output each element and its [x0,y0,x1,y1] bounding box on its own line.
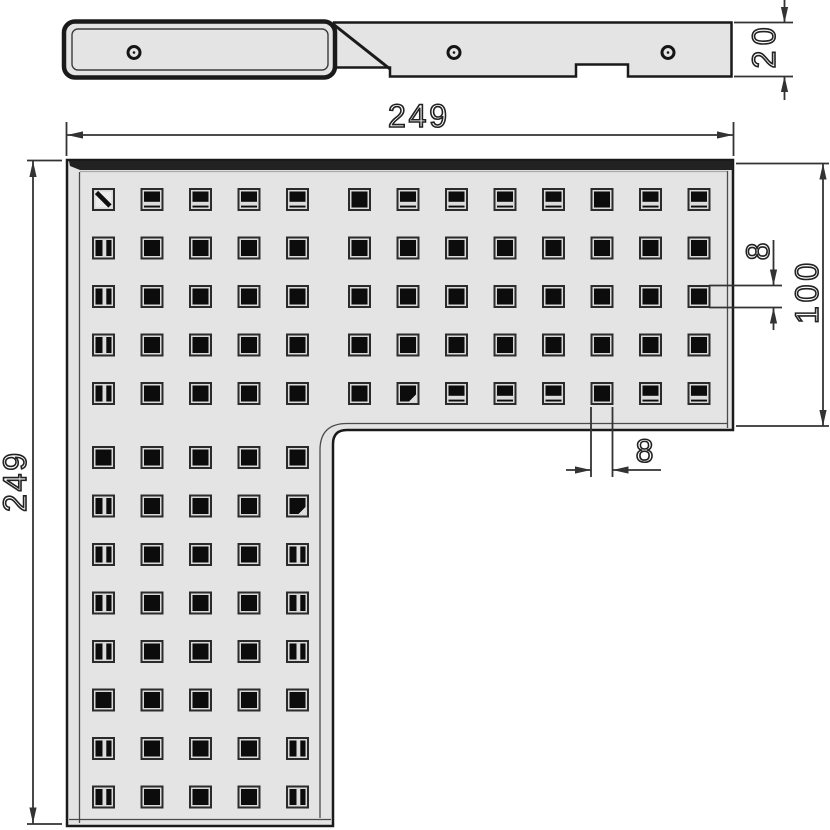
grate-hole [286,689,309,712]
grate-hole [639,382,662,405]
grate-hole [141,640,164,663]
grate-hole [141,786,164,809]
arrowhead [613,466,629,473]
dimension-thickness-20 [734,0,793,100]
dim-label-hole-width: 8 [636,433,653,469]
grate-hole [445,382,468,405]
grate-hole [92,334,115,357]
grate-hole [238,737,261,760]
grate-hole [397,285,420,308]
grate-hole [639,188,662,211]
grate-hole [189,689,212,712]
plate-outline [67,160,733,826]
grate-hole [286,640,309,663]
plan-view [67,160,733,826]
grate-hole [238,640,261,663]
profile-rivet-hole [448,47,460,59]
grate-hole [286,188,309,211]
grate-hole [189,737,212,760]
grate-hole [141,285,164,308]
grate-hole [238,237,261,260]
grate-hole [92,382,115,405]
grate-hole [286,786,309,809]
grate-hole [591,285,614,308]
grate-hole [189,543,212,566]
grate-hole [445,334,468,357]
grate-hole [92,237,115,260]
profile-view [64,22,732,78]
grate-hole [494,334,517,357]
grate-hole [591,334,614,357]
grate-hole [238,188,261,211]
grate-hole [92,188,115,211]
grate-hole [141,543,164,566]
grate-hole [141,334,164,357]
grate-hole [286,285,309,308]
arrowhead [781,76,788,92]
grate-hole [238,543,261,566]
arrowhead [29,161,36,177]
dim-label-thickness: 20 [746,28,782,68]
grate-hole [189,334,212,357]
grate-hole [542,382,565,405]
profile-endcap-outline [64,22,335,78]
arrowhead [770,308,777,324]
grate-hole [591,188,614,211]
grate-hole [542,285,565,308]
grate-hole [189,188,212,211]
grate-hole [688,188,711,211]
grate-hole [286,543,309,566]
grate-hole [141,382,164,405]
grate-hole [189,446,212,469]
grate-hole [141,237,164,260]
dim-label-hole-height: 8 [740,243,776,260]
arrowhead [67,131,83,138]
grate-hole [286,592,309,615]
grate-hole [348,382,371,405]
arrowhead [819,410,826,426]
plate-inner-corner-line [320,424,727,819]
grate-hole [238,495,261,518]
profile-rivet-hole [662,47,674,59]
grate-hole [445,188,468,211]
grate-hole [397,382,420,405]
grate-hole [92,737,115,760]
grate-hole [92,640,115,663]
dim-label-arm-width: 100 [789,264,825,324]
grate-hole [688,382,711,405]
grate-hole [286,737,309,760]
grate-hole [591,382,614,405]
grate-hole [189,640,212,663]
grate-hole [494,237,517,260]
arrowhead [770,270,777,286]
grate-hole [397,334,420,357]
grate-hole [92,689,115,712]
grate-hole [542,188,565,211]
grate-hole [189,786,212,809]
grate-hole [494,188,517,211]
grate-hole [189,285,212,308]
grate-hole [189,237,212,260]
grate-hole [238,592,261,615]
grate-hole [238,689,261,712]
grate-hole [639,334,662,357]
grate-hole [92,543,115,566]
grate-hole [445,237,468,260]
grate-hole [286,495,309,518]
grate-hole [286,334,309,357]
grate-hole [348,237,371,260]
grate-hole [238,285,261,308]
grate-hole [688,334,711,357]
arrowhead [29,808,36,824]
grate-hole [286,382,309,405]
grate-hole [397,188,420,211]
arrowhead [717,131,733,138]
arrowhead [781,7,788,23]
dim-label-width: 249 [388,98,446,134]
arrowhead [819,164,826,180]
grate-hole [542,237,565,260]
grate-hole [141,495,164,518]
grate-hole [141,689,164,712]
drawing-page: 20 249 249 100 [0,0,830,830]
grate-hole [92,285,115,308]
grate-hole [348,188,371,211]
grate-hole [397,237,420,260]
grate-hole [141,592,164,615]
grate-hole [348,334,371,357]
grate-hole [189,495,212,518]
grate-hole [286,446,309,469]
dim-label-height: 249 [0,454,33,512]
grate-hole [286,237,309,260]
grate-hole [141,737,164,760]
grate-hole [92,592,115,615]
profile-rivet-hole [128,47,140,59]
grate-hole [238,334,261,357]
grate-hole [688,285,711,308]
grate-hole [238,786,261,809]
grate-hole [189,382,212,405]
technical-drawing-canvas: 20 249 249 100 [0,0,830,830]
grate-hole [92,495,115,518]
grate-hole [639,285,662,308]
grate-hole [688,237,711,260]
grate-hole [189,592,212,615]
grate-hole [494,382,517,405]
grate-hole [238,446,261,469]
grate-hole [92,446,115,469]
grate-hole [639,237,662,260]
grate-hole [141,446,164,469]
grate-hole [591,237,614,260]
grate-hole [542,334,565,357]
grate-hole [445,285,468,308]
grate-hole [348,285,371,308]
plate-top-edge-band [69,161,733,170]
grate-hole [494,285,517,308]
grate-hole [238,382,261,405]
arrowhead [575,466,591,473]
grate-hole [141,188,164,211]
grate-hole [92,786,115,809]
